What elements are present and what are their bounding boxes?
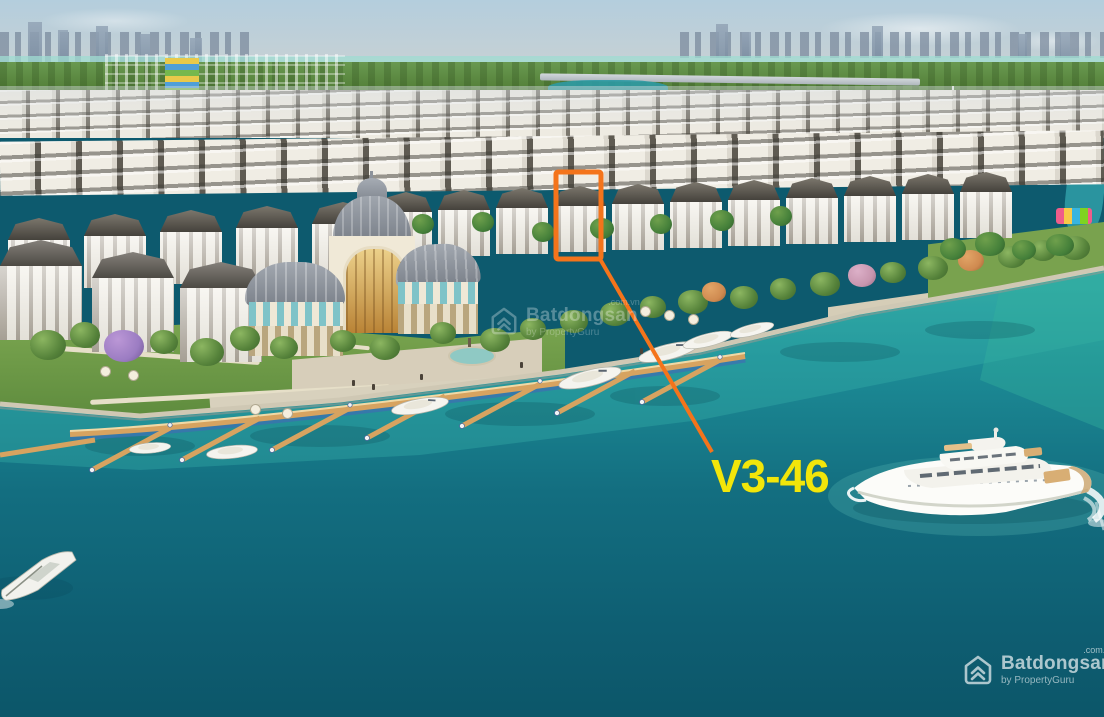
watermark-byline: by PropertyGuru [1001, 676, 1104, 686]
watermark-byline: by PropertyGuru [526, 328, 638, 338]
highlight-rectangle [556, 172, 601, 259]
batdongsan-logo-icon [962, 654, 994, 686]
corner-watermark: Batdongsan .com.vn by PropertyGuru [962, 654, 1104, 686]
unit-label: V3-46 [711, 449, 829, 503]
leader-line [600, 259, 712, 452]
watermark-domain: .com.vn [608, 298, 640, 307]
watermark-brand: Batdongsan [1001, 654, 1104, 673]
annotation-layer [0, 0, 1104, 717]
watermark-brand: Batdongsan [526, 306, 638, 325]
batdongsan-logo-icon [489, 306, 519, 336]
aerial-masterplan-render: V3-46 Batdongsan .com.vn by PropertyGuru… [0, 0, 1104, 717]
center-watermark: Batdongsan .com.vn by PropertyGuru [489, 306, 638, 338]
watermark-domain: .com.vn [1083, 646, 1104, 655]
